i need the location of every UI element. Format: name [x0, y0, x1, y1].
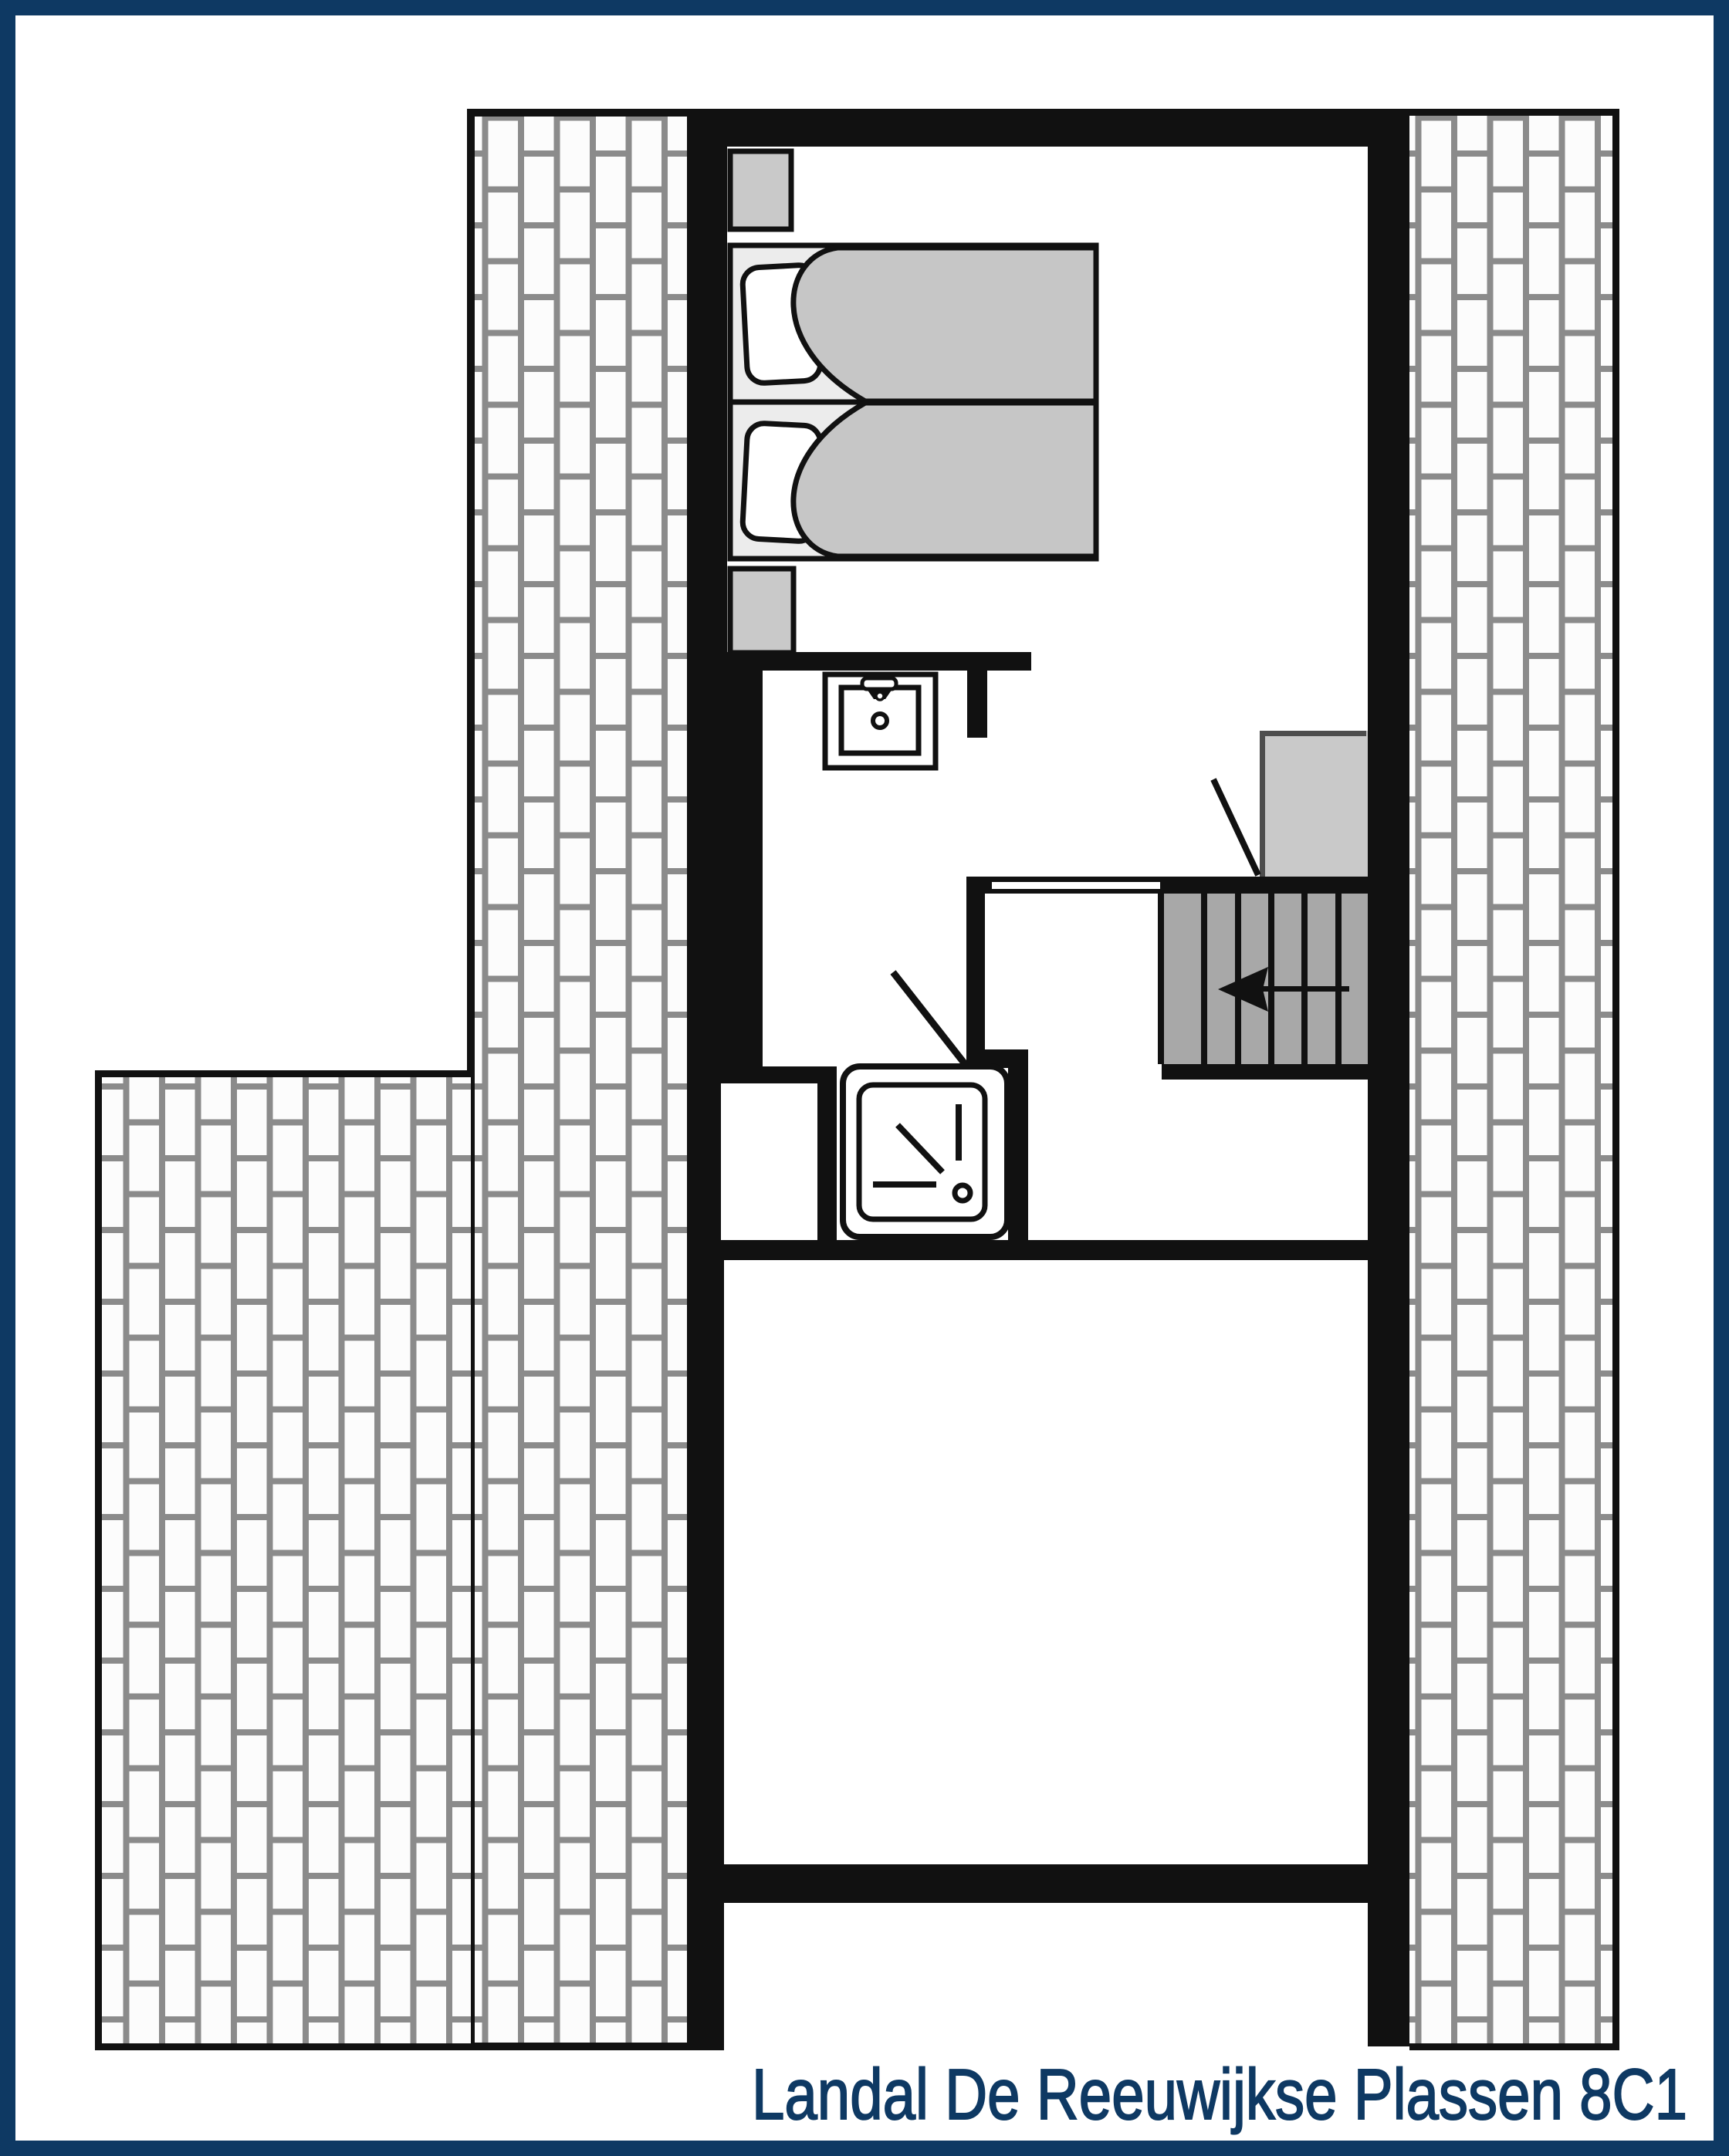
svg-text:Landal De Reeuwijkse Plassen 8: Landal De Reeuwijkse Plassen 8C1 [752, 2054, 1687, 2134]
